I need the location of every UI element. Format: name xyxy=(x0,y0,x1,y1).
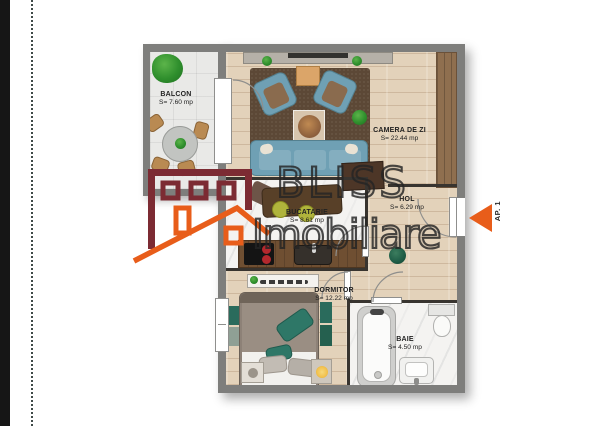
plant-icon xyxy=(352,56,362,66)
lamp xyxy=(248,368,258,378)
toilet-bowl xyxy=(433,315,451,337)
plant-icon xyxy=(152,54,183,83)
dresser-decor xyxy=(260,280,308,284)
bathroom-door xyxy=(371,297,402,304)
coffee-table xyxy=(293,110,325,142)
wall-bathroom-top-right xyxy=(402,300,457,303)
entrance-door xyxy=(449,197,457,237)
side-table xyxy=(296,66,320,86)
room-area: S= 4.50 mp xyxy=(374,344,436,351)
sink-basin xyxy=(405,362,428,377)
room-label-dormitor: DORMITOR S= 12.22 mp xyxy=(300,287,368,302)
wall-top xyxy=(143,44,465,52)
room-name: CAMERA DE ZI xyxy=(352,127,447,134)
room-label-camera-de-zi: CAMERA DE ZI S= 22.44 mp xyxy=(352,127,447,142)
apartment-label: AP. 1 xyxy=(493,201,506,239)
bedside-mat xyxy=(320,325,332,346)
wall-bottom xyxy=(218,385,465,393)
bathtub-faucet xyxy=(370,309,384,315)
bathroom-sink xyxy=(399,357,434,384)
room-area: S= 12.22 mp xyxy=(300,295,368,302)
floorplan-page: BALCON S= 7.60 mp CAMERA DE ZI S= 22.44 … xyxy=(0,0,607,426)
bedroom-window xyxy=(215,298,229,352)
room-name: DORMITOR xyxy=(300,287,368,294)
watermark-line2: Imobiliare xyxy=(252,212,441,258)
room-label-balcon: BALCON S= 7.60 mp xyxy=(141,91,211,106)
nightstand-left xyxy=(241,362,264,383)
room-name: BALCON xyxy=(141,91,211,98)
plant-icon xyxy=(175,138,186,149)
nightstand-right xyxy=(311,359,332,384)
room-name: BAIE xyxy=(374,336,436,343)
armchair-cushion xyxy=(320,80,348,109)
left-black-bar xyxy=(0,0,10,426)
room-area: S= 7.60 mp xyxy=(141,99,211,106)
plant-icon xyxy=(250,276,258,284)
bathtub-drain xyxy=(374,371,382,379)
fold-dotted-line xyxy=(31,0,33,426)
watermark-line1: BLISS xyxy=(276,158,409,207)
balcony-door xyxy=(214,78,232,164)
sink-faucet xyxy=(414,378,419,385)
plant-icon xyxy=(262,56,272,66)
bedside-mat xyxy=(228,306,239,325)
lamp xyxy=(316,366,328,378)
entrance-opening xyxy=(457,198,465,236)
room-area: S= 22.44 mp xyxy=(352,135,447,142)
window-line xyxy=(218,324,226,325)
apartment-label-text: AP. 1 xyxy=(493,201,502,221)
plant-icon xyxy=(352,110,367,125)
wall-bedroom-right-lower xyxy=(347,298,350,385)
bedside-mat xyxy=(320,302,332,323)
bedside-mat xyxy=(228,327,239,346)
room-label-baie: BAIE S= 4.50 mp xyxy=(374,336,436,351)
armchair-cushion xyxy=(262,81,290,110)
tv xyxy=(288,53,348,58)
wardrobe xyxy=(436,52,457,188)
entrance-arrow-icon xyxy=(469,204,492,232)
coffee-table-top xyxy=(298,115,321,138)
